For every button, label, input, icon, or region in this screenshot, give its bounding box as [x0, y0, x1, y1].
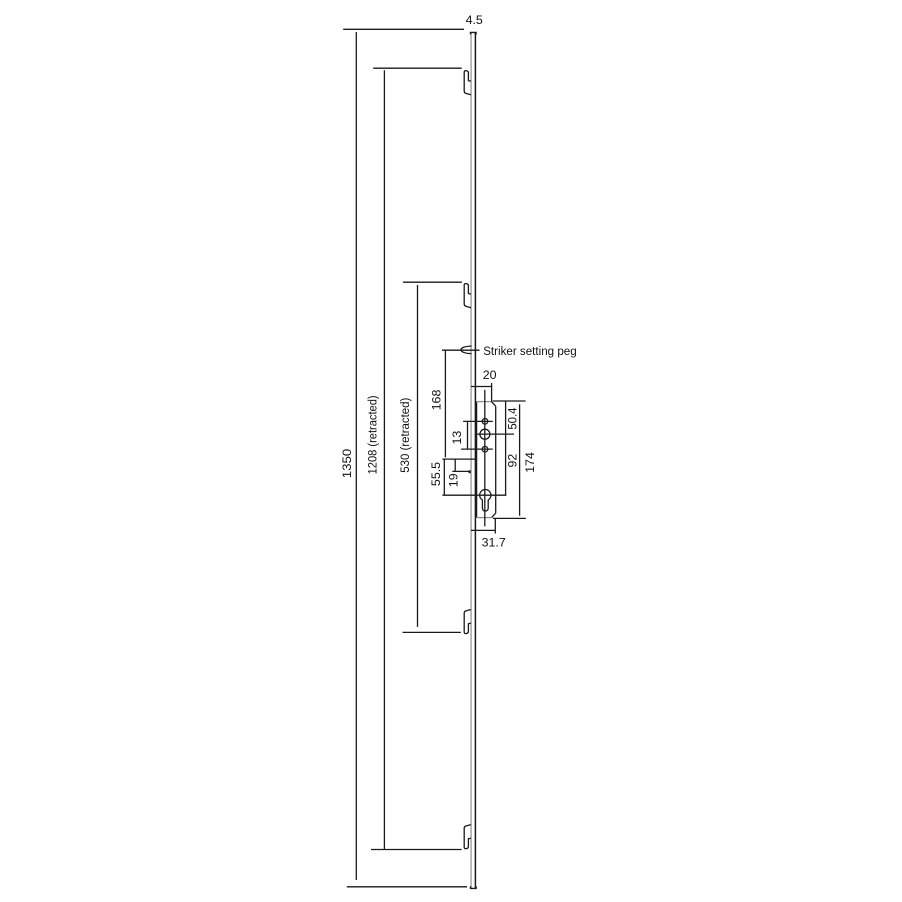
svg-text:1350: 1350	[340, 449, 354, 479]
svg-text:31.7: 31.7	[482, 536, 506, 550]
svg-text:13: 13	[450, 431, 464, 445]
svg-text:19: 19	[446, 473, 460, 487]
svg-text:1208 (retracted): 1208 (retracted)	[365, 395, 379, 474]
svg-text:530 (retracted): 530 (retracted)	[398, 398, 412, 473]
svg-text:168: 168	[430, 390, 444, 411]
svg-text:20: 20	[483, 368, 497, 382]
svg-text:174: 174	[523, 452, 537, 473]
svg-text:4.5: 4.5	[466, 13, 483, 27]
svg-text:Striker setting peg: Striker setting peg	[483, 344, 577, 358]
svg-text:50.4: 50.4	[506, 408, 520, 430]
svg-text:55.5: 55.5	[429, 462, 443, 486]
svg-text:92: 92	[506, 454, 520, 468]
